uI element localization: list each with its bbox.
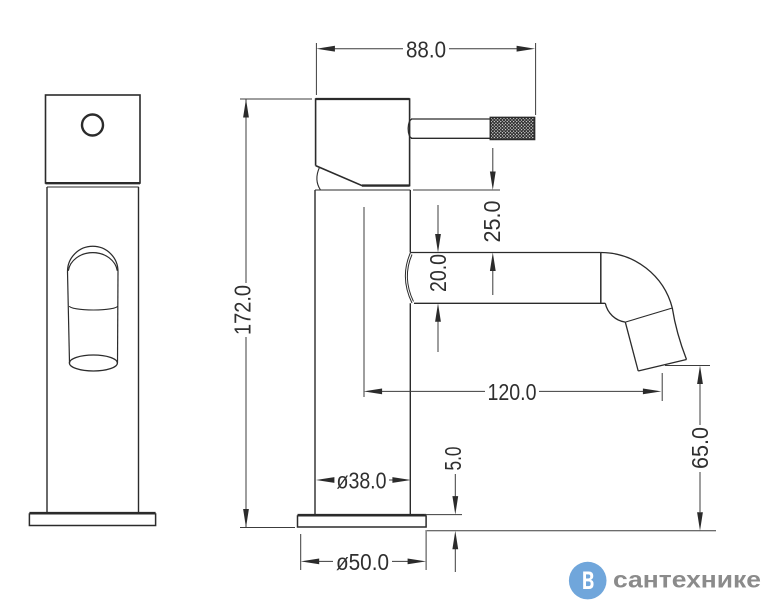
- svg-text:20.0: 20.0: [425, 254, 451, 292]
- svg-text:сантехнике: сантехнике: [613, 566, 761, 592]
- svg-text:25.0: 25.0: [479, 201, 505, 243]
- svg-text:172.0: 172.0: [230, 285, 256, 335]
- svg-text:ø38.0: ø38.0: [337, 468, 387, 494]
- svg-text:5.0: 5.0: [440, 447, 466, 471]
- svg-text:ø50.0: ø50.0: [336, 549, 389, 575]
- svg-text:65.0: 65.0: [687, 427, 713, 469]
- svg-text:в: в: [582, 559, 595, 596]
- svg-text:88.0: 88.0: [406, 36, 446, 62]
- svg-text:120.0: 120.0: [488, 379, 537, 405]
